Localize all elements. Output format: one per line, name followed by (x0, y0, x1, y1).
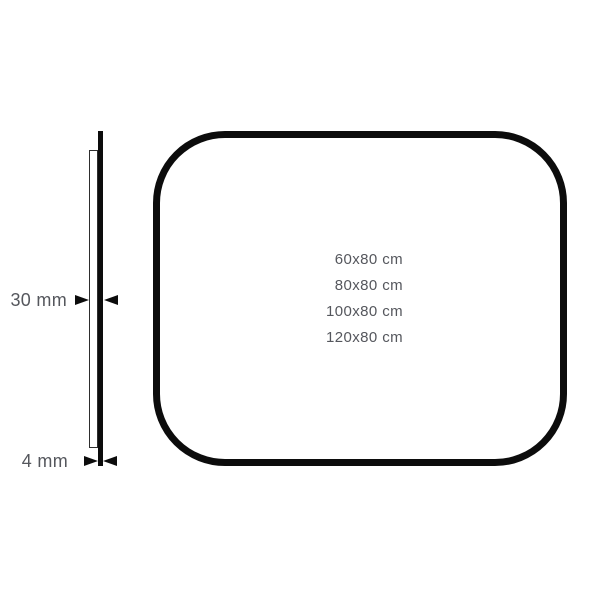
mount-depth-outline (89, 150, 98, 448)
thickness-arrowhead-left-icon (103, 456, 117, 466)
thickness-arrowhead-right-icon (84, 456, 98, 466)
depth-arrowhead-right-icon (75, 295, 89, 305)
size-option: 60x80 cm (326, 247, 403, 273)
size-option: 100x80 cm (326, 299, 403, 325)
depth-dimension-label: 30 mm (10, 290, 67, 310)
depth-arrowhead-left-icon (104, 295, 118, 305)
product-dimension-diagram: 30 mm 4 mm 60x80 cm 80x80 cm 100x80 cm 1… (0, 0, 600, 600)
size-option: 120x80 cm (326, 325, 403, 351)
thickness-dimension-label: 4 mm (22, 451, 68, 471)
board-size-list: 60x80 cm 80x80 cm 100x80 cm 120x80 cm (326, 247, 403, 351)
board-edge-line (98, 131, 103, 466)
size-option: 80x80 cm (326, 273, 403, 299)
